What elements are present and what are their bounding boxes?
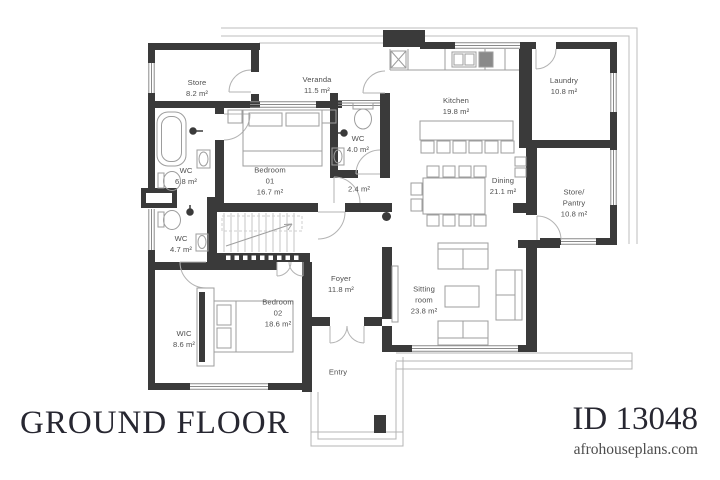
room-label-wc-47: WC4.7 m² [170, 233, 192, 255]
wall-niche [146, 193, 172, 203]
bed-01 [228, 110, 336, 166]
page-title: GROUND FLOOR [20, 405, 290, 442]
dining-table [411, 166, 486, 226]
room-label-kitchen: Kitchen19.8 m² [443, 95, 469, 117]
armchair-right [496, 270, 522, 320]
kitchen-counter [390, 49, 519, 70]
toilet-wc40 [353, 103, 373, 129]
room-label-entry: Entry [329, 367, 347, 378]
room-label-pantry: Store/ Pantry10.8 m² [561, 187, 587, 220]
website-link[interactable]: afrohouseplans.com [572, 441, 698, 459]
sofa-bottom [438, 321, 488, 345]
terrace-outline [396, 353, 632, 369]
room-label-wic: WIC8.6 m² [173, 328, 195, 350]
room-label-laundry: Laundry10.8 m² [550, 75, 578, 97]
bathtub [157, 112, 186, 166]
staircase [222, 213, 302, 252]
sink-wc68 [197, 150, 210, 168]
coffee-table [445, 286, 479, 307]
kitchen-shelves [515, 157, 526, 177]
room-label-sitting-room: Sitting room23.8 m² [411, 284, 437, 317]
room-label-bedroom-01: Bedroom 0116.7 m² [254, 165, 286, 198]
room-label-wc-40: WC4.0 m² [347, 133, 369, 155]
toilet-wc47 [158, 211, 181, 230]
room-label-wc-68: WC6.8 m² [175, 165, 197, 187]
plan-id: ID 13048 [572, 401, 698, 438]
room-label-store: Store8.2 m² [186, 77, 208, 99]
sink-wc47 [196, 234, 208, 251]
floor-plan: Store8.2 m² Veranda11.5 m² Kitchen19.8 m… [0, 0, 720, 480]
stair-balusters [226, 256, 299, 261]
kitchen-island [420, 121, 514, 153]
room-label-veranda: Veranda11.5 m² [303, 74, 332, 96]
room-label-bedroom-02: Bedroom 0218.6 m² [262, 297, 294, 330]
plan-id-block: ID 13048 afrohouseplans.com [572, 401, 698, 459]
sofa-top [438, 243, 488, 269]
walls [141, 30, 617, 433]
entry-porch-steps [311, 357, 403, 446]
tv-cabinet [392, 266, 398, 322]
room-label-dining: Dining21.1 m² [490, 175, 516, 197]
room-label-foyer: Foyer11.8 m² [328, 273, 354, 295]
room-label-corridor: 2.4 m² [348, 184, 370, 195]
